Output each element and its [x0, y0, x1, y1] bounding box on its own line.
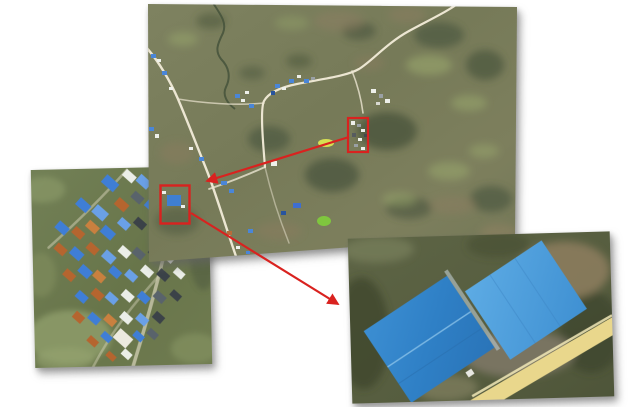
figure-canvas — [0, 0, 629, 407]
main-map-image — [147, 3, 519, 265]
blue-building-marker-target — [167, 195, 181, 206]
warehouse-inset-image — [348, 231, 615, 403]
main-map-photo — [147, 3, 519, 265]
warehouse-inset-photo — [348, 231, 615, 403]
